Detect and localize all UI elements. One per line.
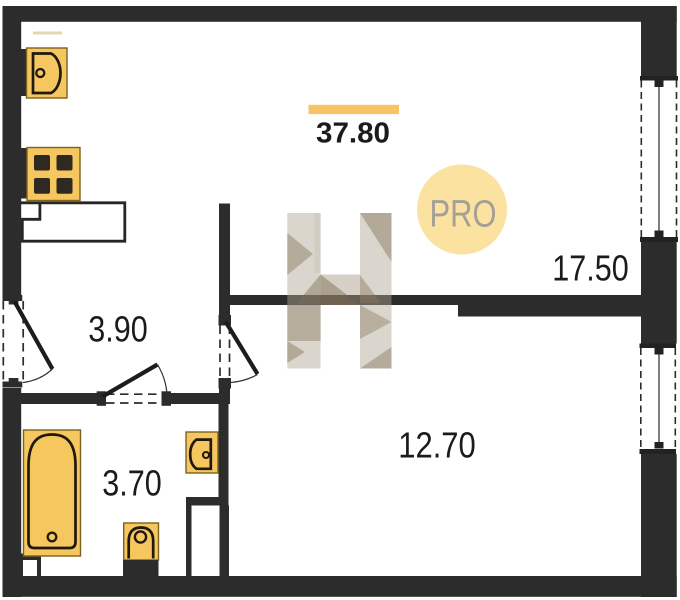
svg-text:12.70: 12.70 bbox=[398, 425, 476, 466]
svg-text:3.90: 3.90 bbox=[88, 308, 148, 349]
svg-text:PRO: PRO bbox=[430, 194, 497, 236]
svg-text:37.80: 37.80 bbox=[316, 118, 390, 150]
svg-text:3.70: 3.70 bbox=[102, 462, 162, 503]
svg-text:17.50: 17.50 bbox=[552, 248, 629, 289]
